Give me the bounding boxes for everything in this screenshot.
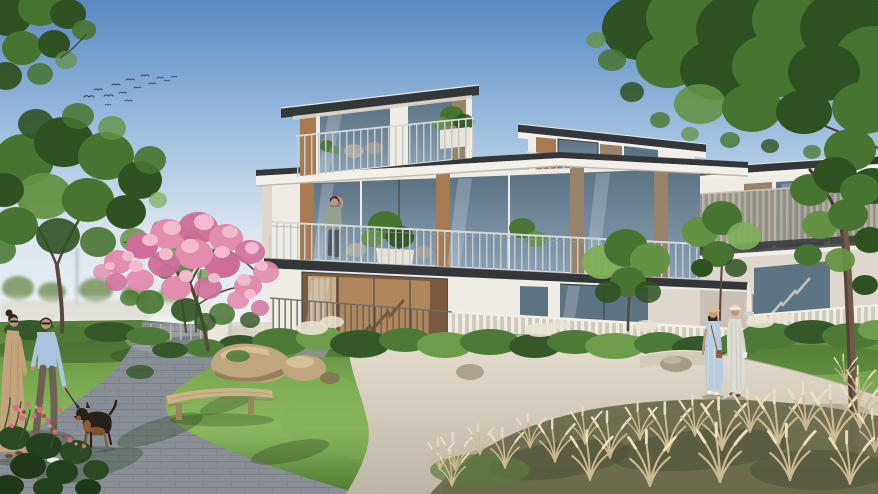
plume-grass — [634, 320, 658, 332]
plume-grass — [771, 313, 793, 323]
sunglasses — [10, 321, 19, 323]
rock — [456, 364, 484, 380]
plume-grass — [320, 316, 344, 328]
scene — [0, 0, 878, 494]
plume-grass — [746, 316, 774, 328]
scene-canvas — [0, 0, 878, 494]
handbag — [716, 350, 723, 358]
sunglasses — [42, 323, 51, 325]
plume-grass — [549, 320, 571, 330]
